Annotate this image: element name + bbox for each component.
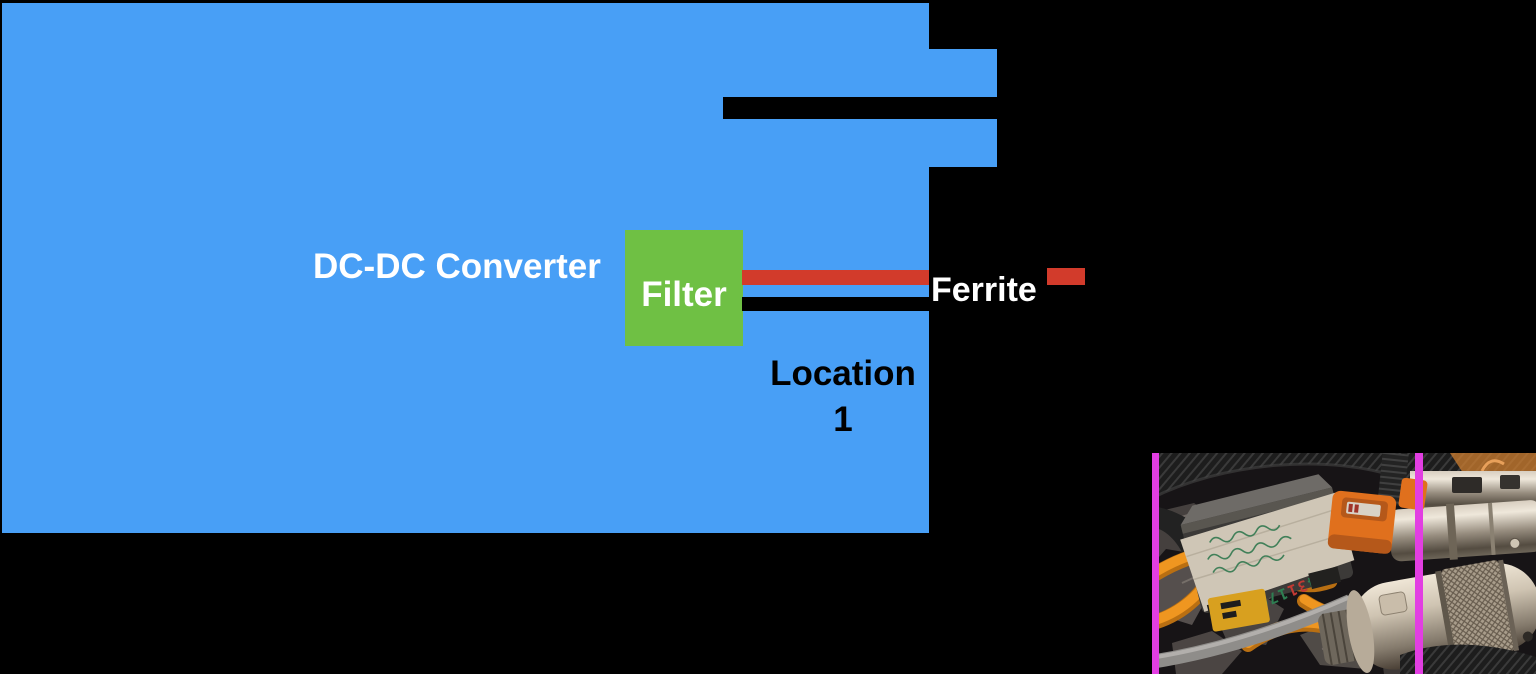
crop-marker-right — [1415, 453, 1423, 674]
filter-box: Filter — [625, 230, 743, 346]
location-label-line1: Location — [763, 351, 923, 397]
ferrite-location-photo: 0431176451 — [1152, 453, 1536, 674]
ferrite-label: Ferrite — [931, 272, 1037, 308]
photo-illustration: 0431176451 — [1152, 453, 1536, 674]
negative-black-wire — [742, 297, 929, 311]
location-1-label: Location 1 — [763, 351, 923, 443]
positive-red-wire — [742, 270, 929, 285]
top-black-wire — [723, 97, 997, 119]
slide-canvas: DC-DC Converter Filter Ferrite Location … — [0, 0, 1536, 674]
filter-label: Filter — [641, 277, 727, 312]
crop-marker-left — [1152, 453, 1159, 674]
dcdc-converter-label: DC-DC Converter — [313, 249, 601, 285]
location-label-line2: 1 — [763, 397, 923, 443]
ferrite-bead-red-dash — [1047, 268, 1085, 285]
